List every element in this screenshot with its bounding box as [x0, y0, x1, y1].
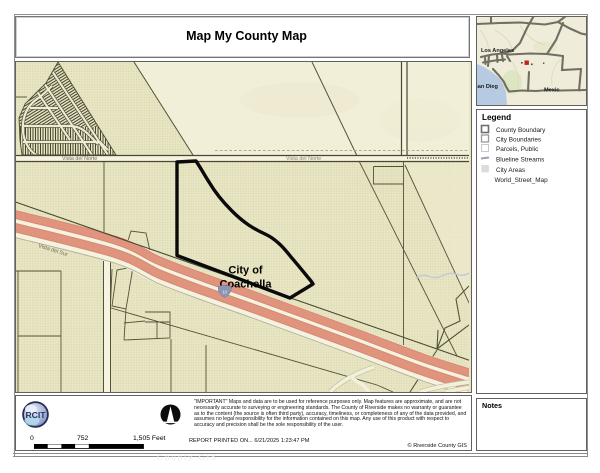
- svg-text:San Dieg: San Dieg: [477, 84, 499, 90]
- svg-text:Vista del Norte: Vista del Norte: [286, 156, 321, 162]
- svg-text:County Boundary: County Boundary: [496, 127, 546, 134]
- svg-text:Los Angeles: Los Angeles: [481, 48, 514, 54]
- svg-text:City Boundaries: City Boundaries: [496, 137, 541, 144]
- svg-text:RCIT: RCIT: [25, 410, 46, 420]
- svg-text:Mexic: Mexic: [544, 88, 560, 94]
- svg-text:City of: City of: [228, 265, 263, 277]
- svg-text:10: 10: [222, 290, 228, 295]
- svg-text:World_Street_Map: World_Street_Map: [495, 177, 549, 184]
- svg-text:Vista del Norte: Vista del Norte: [62, 156, 97, 162]
- svg-text:Legend: Legend: [482, 113, 511, 122]
- svg-text:Blueline Streams: Blueline Streams: [496, 157, 544, 164]
- svg-text:Parcels, Public: Parcels, Public: [496, 146, 539, 153]
- svg-text:City Areas: City Areas: [496, 167, 525, 174]
